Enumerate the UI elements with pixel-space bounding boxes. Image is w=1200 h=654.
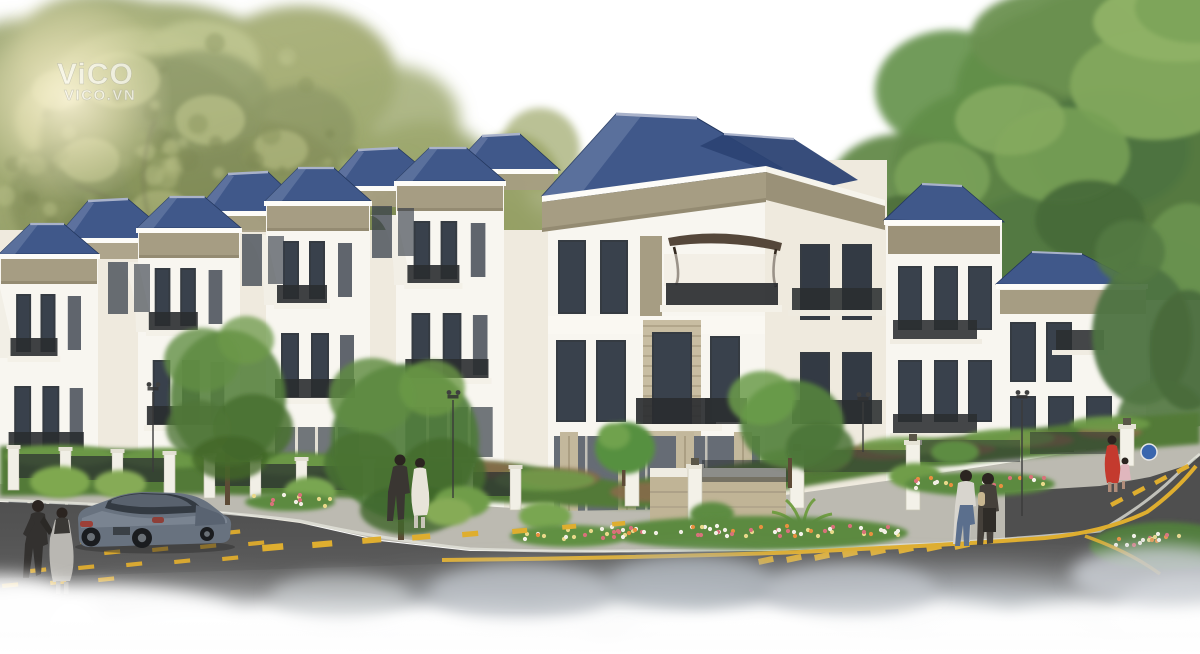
- svg-text:VICO.VN: VICO.VN: [64, 87, 136, 104]
